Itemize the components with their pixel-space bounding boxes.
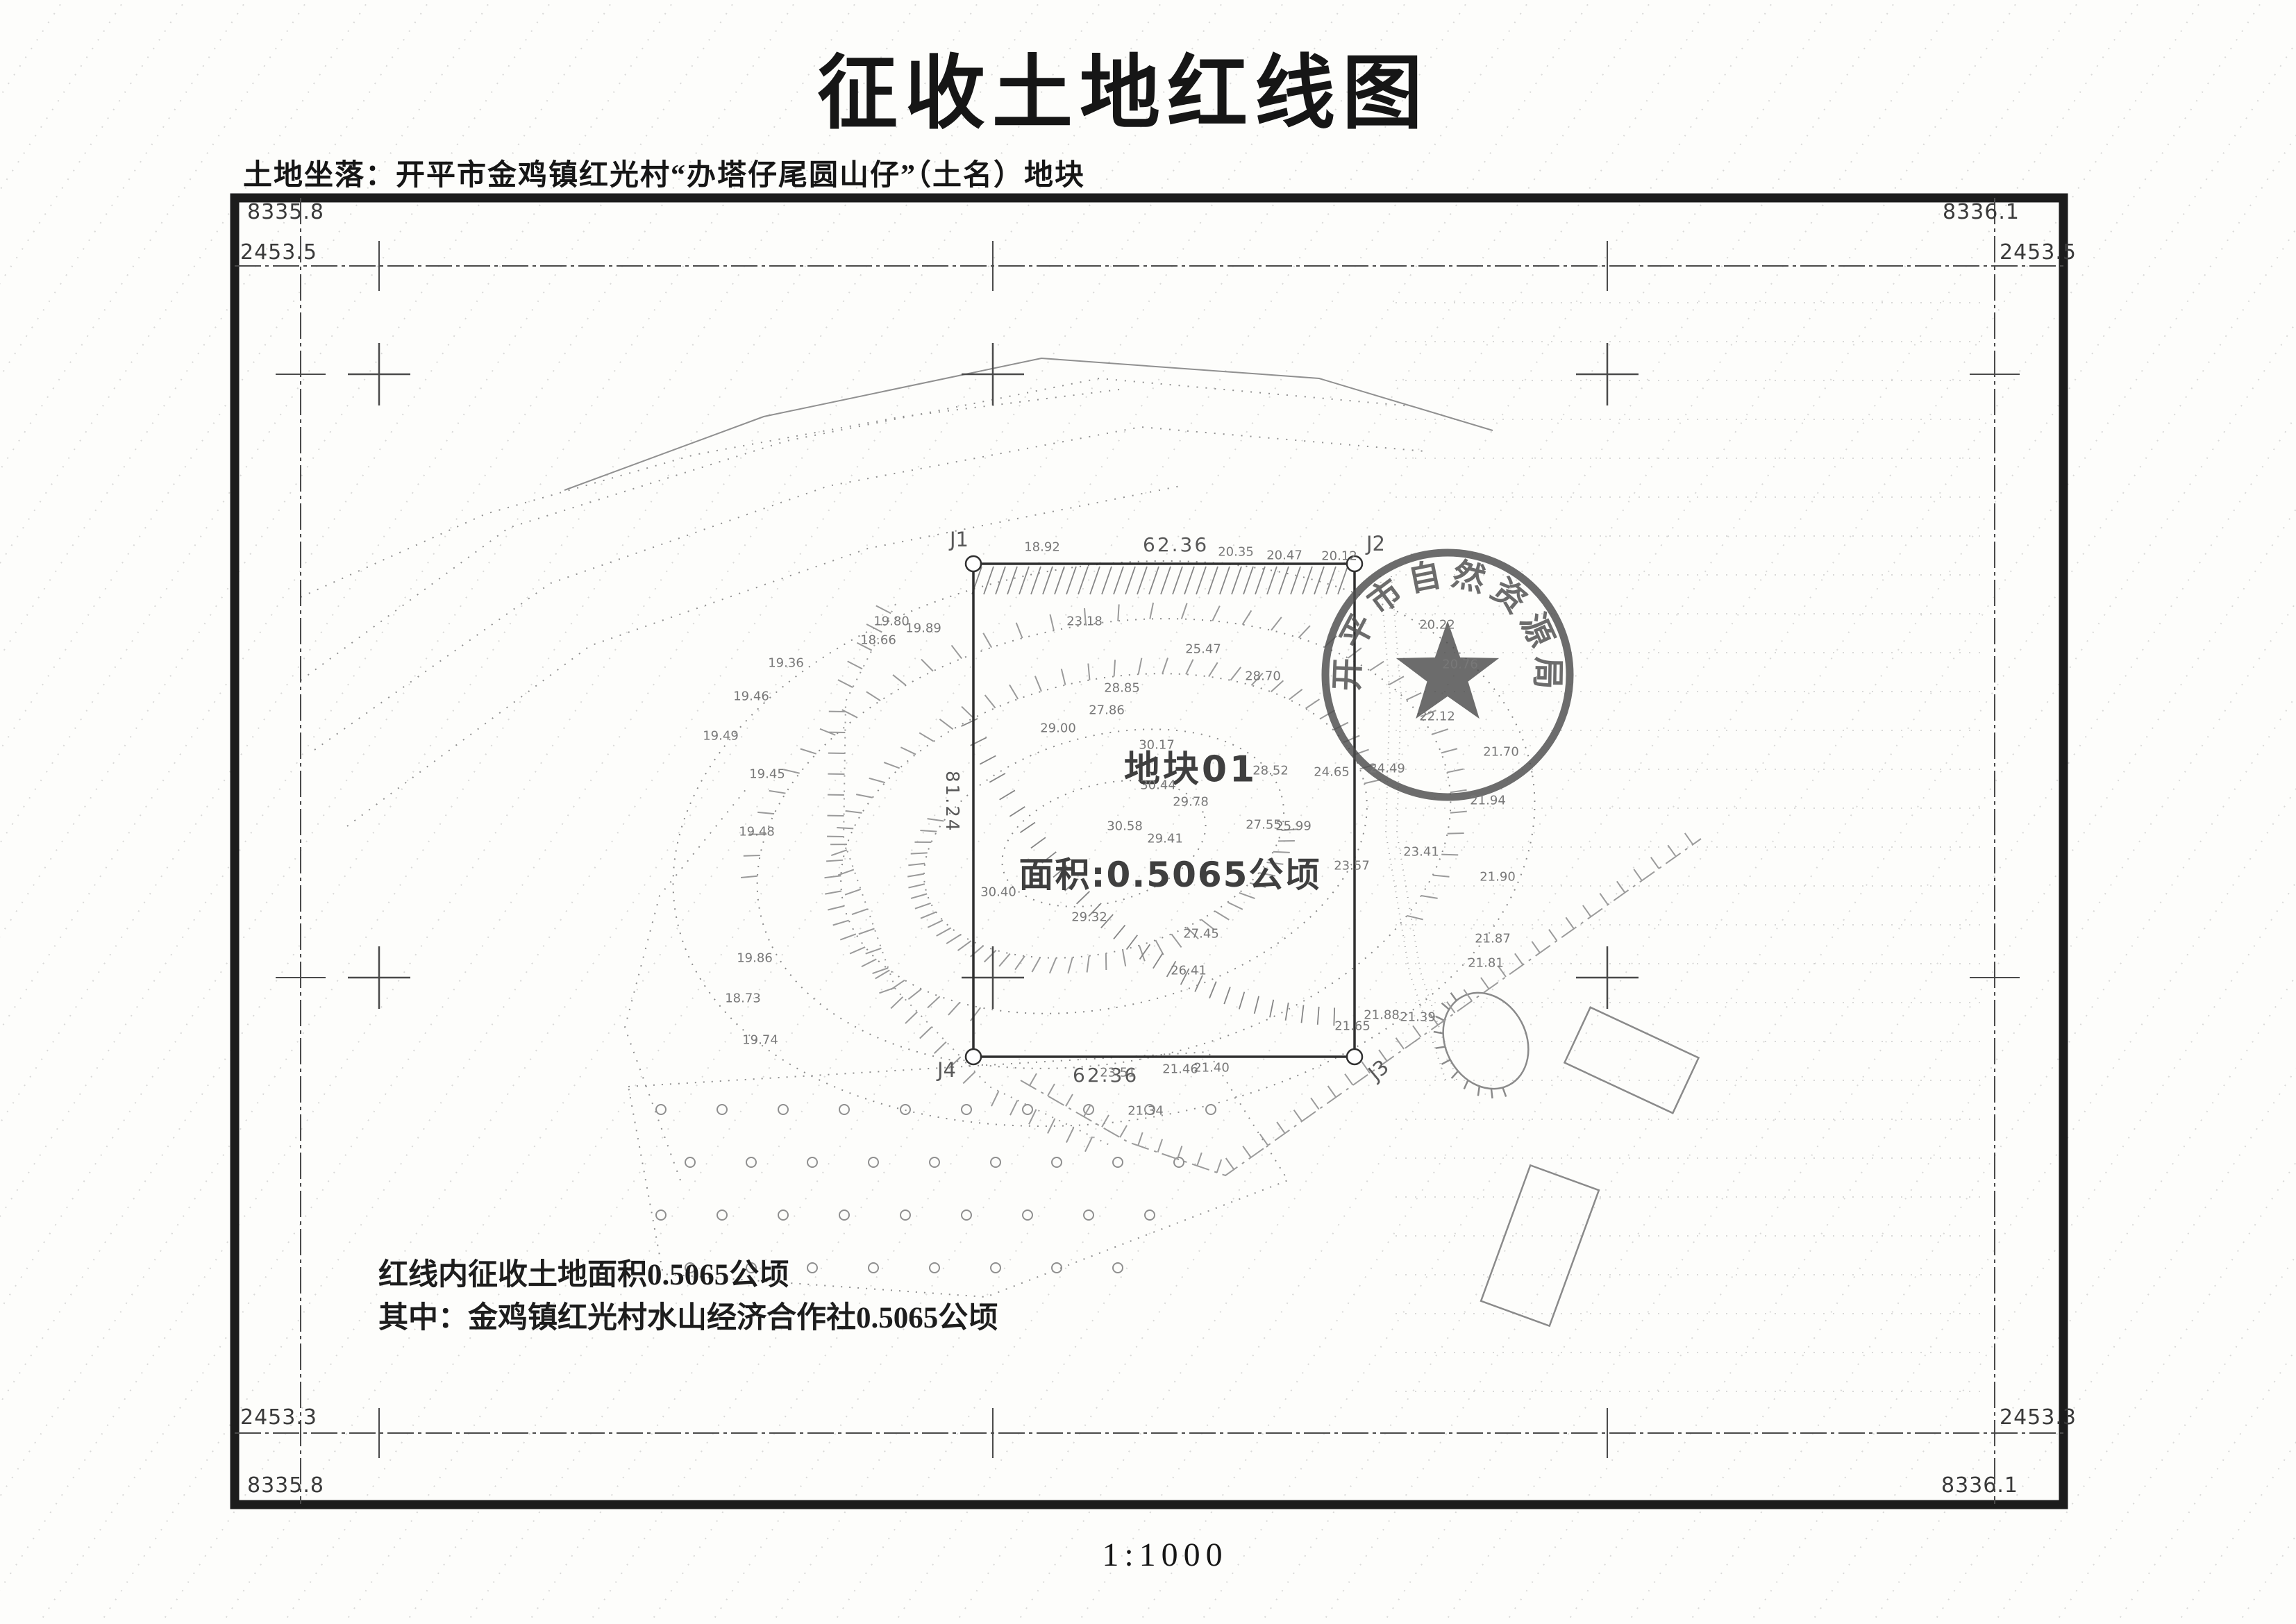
hachure-tick	[1566, 917, 1574, 928]
hachure-tick	[1010, 1100, 1017, 1116]
hachure-tick	[884, 762, 900, 768]
texture-line	[242, 0, 1387, 1624]
hachure-tick	[1230, 667, 1241, 680]
hachure-tick	[907, 874, 924, 877]
hatch-tick	[1314, 567, 1324, 594]
hachure-tick	[1282, 829, 1298, 830]
hachure-tick	[1478, 1086, 1480, 1096]
hachure-tick	[946, 935, 960, 944]
hachure-tick	[1481, 978, 1489, 989]
hachure-tick	[1389, 676, 1404, 685]
hachure-tick	[866, 692, 880, 701]
orchard-dot	[807, 1157, 817, 1167]
contour-line	[564, 358, 1493, 490]
texture-line	[0, 0, 1021, 1624]
hachure-tick	[1306, 699, 1320, 708]
hatch-tick	[1149, 567, 1159, 594]
texture-line	[1525, 0, 2296, 1624]
contour-line	[301, 389, 1125, 597]
contour-line	[625, 785, 750, 1180]
hachure-tick	[937, 928, 951, 936]
hachure-tick	[1450, 812, 1467, 813]
hatch-tick	[1078, 567, 1088, 594]
hachure-tick	[838, 869, 854, 875]
hatch-tick	[1031, 567, 1041, 594]
hatch-tick	[1153, 953, 1163, 969]
orchard-dot	[839, 1210, 849, 1220]
hachure-tick	[850, 947, 865, 954]
hatch-tick	[1195, 976, 1203, 992]
hachure-tick	[879, 987, 895, 993]
hachure-tick	[1407, 916, 1423, 920]
hachure-tick	[911, 853, 928, 853]
hatch-tick	[1114, 925, 1125, 939]
hatch-tick	[1173, 567, 1182, 594]
texture-line	[1219, 0, 2296, 1624]
hachure-tick	[826, 860, 843, 862]
hachure-tick	[1215, 911, 1230, 919]
grid-coord-bottom-left-easting: 2453.3	[240, 1405, 317, 1430]
contour-line	[347, 486, 1180, 826]
hachure-tick	[862, 959, 876, 966]
hatch-tick	[1220, 567, 1230, 594]
hachure-tick	[757, 812, 774, 814]
hachure-tick	[1436, 1047, 1446, 1048]
hachure-tick	[825, 891, 841, 894]
hatch-tick	[1301, 1005, 1303, 1023]
hatch-tick	[1338, 567, 1348, 594]
hachure-tick	[1171, 934, 1181, 947]
hachure-tick	[1212, 606, 1220, 621]
texture-line	[1647, 0, 2296, 1624]
orchard-dot	[1145, 1105, 1155, 1114]
texture-line	[1891, 0, 2296, 1624]
land-location-label: 土地坐落：开平市金鸡镇红光村“办塔仔尾圆山仔”（土名）地块	[243, 151, 1085, 194]
hatch-tick	[984, 567, 994, 594]
hachure-tick	[801, 749, 816, 754]
texture-line	[2197, 0, 2296, 1624]
hatch-tick	[1090, 567, 1100, 594]
hachure-tick	[1430, 1014, 1438, 1025]
grid-coord-bottom-right-easting: 2453.3	[2000, 1405, 2077, 1430]
texture-line	[914, 0, 2059, 1624]
hachure-tick	[1441, 748, 1457, 753]
contour-line	[315, 427, 1425, 750]
hachure-tick	[963, 1072, 975, 1084]
hachure-tick	[911, 894, 927, 898]
hachure-tick	[852, 909, 868, 914]
hachure-tick	[840, 934, 856, 939]
hachure-tick	[744, 855, 760, 856]
hachure-tick	[985, 695, 996, 708]
texture-line	[853, 0, 1998, 1624]
hatch-tick	[1224, 987, 1230, 1005]
hachure-tick	[908, 864, 925, 866]
hachure-tick	[1217, 1160, 1221, 1173]
orchard-dot	[1145, 1210, 1155, 1220]
parcel-corner-label-j2: J2	[1366, 532, 1385, 555]
hachure-tick	[1066, 1094, 1073, 1106]
texture-line	[364, 0, 1509, 1624]
hachure-tick	[749, 834, 766, 835]
hachure-tick	[1088, 664, 1089, 680]
hachure-tick	[891, 997, 903, 1009]
hatch-tick	[1101, 914, 1113, 928]
terrain-layer	[0, 0, 2296, 1624]
hatch-tick	[1125, 567, 1135, 594]
orchard-dot	[930, 1157, 939, 1167]
hachure-tick	[1209, 662, 1218, 676]
hachure-tick	[1162, 658, 1168, 673]
hachure-tick	[1436, 1016, 1445, 1021]
orchard-dot	[1023, 1105, 1032, 1114]
hachure-tick	[1617, 881, 1625, 892]
orchard-dot	[1113, 1157, 1123, 1167]
hatch-tick	[1102, 567, 1112, 594]
texture-line	[0, 0, 715, 1624]
hatch-tick	[1137, 567, 1147, 594]
note-total-area: 红线内征收土地面积0.5065公顷	[378, 1254, 998, 1297]
hachure-tick	[1062, 669, 1066, 685]
hachure-tick	[831, 850, 847, 855]
orchard-dot	[839, 1105, 849, 1114]
hachure-tick	[1048, 1084, 1055, 1096]
hachure-tick	[1634, 869, 1642, 880]
hatch-tick	[1239, 992, 1245, 1010]
hachure-tick	[991, 1091, 998, 1107]
orchard-dot	[656, 1105, 666, 1114]
hachure-tick	[920, 830, 937, 832]
texture-line	[1158, 0, 2296, 1624]
hatch-tick	[996, 567, 1005, 594]
texture-line	[1464, 0, 2296, 1624]
hachure-tick	[1050, 958, 1056, 973]
hachure-tick	[1182, 603, 1187, 619]
hachure-tick	[1114, 660, 1115, 676]
hachure-tick	[1413, 1026, 1421, 1037]
hatch-tick	[1009, 807, 1025, 817]
hachure-tick	[825, 876, 841, 878]
texture-line	[608, 0, 1754, 1624]
orchard-dot	[717, 1210, 727, 1220]
parcel-boundary	[966, 556, 1362, 1064]
hatch-tick	[961, 719, 978, 726]
hachure-tick	[1120, 1125, 1127, 1137]
texture-line	[0, 0, 1143, 1624]
hachure-tick	[1123, 950, 1125, 966]
grid-coord-top-right-northing: 8336.1	[1943, 200, 2020, 224]
texture-line	[0, 0, 898, 1624]
grid-coord-top-left-northing: 8335.8	[247, 200, 324, 224]
corner-marker-j3	[1347, 1049, 1362, 1064]
hachure-tick	[1138, 1132, 1142, 1146]
hachure-tick	[952, 645, 962, 658]
hachure-tick	[1251, 673, 1262, 686]
hachure-tick	[962, 707, 973, 719]
texture-line	[669, 0, 1815, 1624]
orchard-dot	[869, 1157, 878, 1167]
grid-coord-bottom-right-northing: 8336.1	[1941, 1473, 2018, 1498]
hachure-tick	[741, 876, 757, 878]
orchard-dot	[746, 1157, 756, 1167]
hachure-tick	[1298, 626, 1309, 637]
grid-coord-top-left-easting: 2453.5	[240, 240, 317, 265]
hachure-tick	[1448, 833, 1464, 834]
building-outline	[1481, 1165, 1599, 1325]
orchard-dot	[778, 1210, 788, 1220]
texture-line	[0, 0, 654, 1624]
texture-line	[303, 0, 1448, 1624]
hachure-tick	[971, 1007, 980, 1021]
hachure-tick	[1084, 608, 1086, 625]
hatch-tick	[1209, 982, 1216, 998]
parcel-edge-length-left: 81.24	[941, 771, 962, 832]
acquisition-notes: 红线内征收土地面积0.5065公顷 其中：金鸡镇红光村水山经济合作社0.5065…	[378, 1254, 998, 1341]
hachure-tick	[1197, 1153, 1201, 1166]
hachure-tick	[838, 680, 853, 687]
hachure-tick	[1243, 1146, 1251, 1157]
map-scale-label: 1:1000	[1102, 1536, 1227, 1574]
texture-line	[1341, 0, 2296, 1624]
parcel-name-label: 地块01	[1124, 740, 1257, 792]
texture-line	[2075, 0, 2296, 1624]
orchard-dot	[717, 1105, 727, 1114]
texture-line	[0, 0, 165, 1624]
orchard-dot	[778, 1105, 788, 1114]
corner-marker-j4	[966, 1049, 981, 1064]
hachure-tick	[1139, 658, 1142, 675]
texture-line	[2258, 0, 2296, 1624]
hachure-tick	[1364, 780, 1380, 783]
orchard-dot	[962, 1105, 971, 1114]
hachure-tick	[1447, 769, 1463, 773]
hachure-tick	[1150, 603, 1153, 619]
hachure-tick	[1651, 857, 1659, 869]
hachure-tick	[866, 948, 882, 954]
background-texture	[0, 0, 2296, 1624]
hachure-tick	[1434, 1032, 1443, 1033]
hachure-tick	[1491, 1089, 1493, 1098]
corner-marker-j1	[966, 556, 981, 571]
hachure-tick	[856, 794, 873, 798]
hatch-tick	[1255, 996, 1259, 1014]
hachure-tick	[935, 1042, 946, 1054]
hachure-tick	[984, 951, 996, 962]
hachure-tick	[1289, 689, 1302, 700]
hachure-tick	[1441, 855, 1458, 855]
parcel-edge-length-top: 62.36	[1143, 533, 1209, 556]
parcel-hatching	[961, 567, 1350, 1026]
hachure-tick	[1048, 1119, 1055, 1134]
flatland-texture	[1396, 303, 1987, 1391]
hachure-tick	[1016, 623, 1023, 638]
hatch-tick	[1020, 822, 1034, 832]
hatch-tick	[1318, 1007, 1319, 1025]
hachure-tick	[948, 1003, 960, 1015]
hachure-tick	[859, 928, 875, 934]
hatch-tick	[1127, 935, 1138, 950]
hachure-tick	[1066, 1128, 1073, 1143]
hachure-tick	[848, 661, 862, 669]
hachure-tick	[920, 1027, 932, 1039]
hachure-tick	[905, 1012, 917, 1023]
hachure-tick	[1050, 614, 1053, 630]
hachure-tick	[1502, 1087, 1506, 1096]
texture-line	[1586, 0, 2296, 1624]
texture-line	[2136, 0, 2296, 1624]
texture-line	[791, 0, 1937, 1624]
parcel-corner-label-j1: J1	[950, 528, 969, 551]
texture-line	[1280, 0, 2296, 1624]
hachure-tick	[1186, 660, 1193, 675]
hatch-tick	[1114, 567, 1123, 594]
hachure-tick	[1515, 953, 1523, 964]
parcel-corner-label-j4: J4	[937, 1058, 956, 1082]
hachure-tick	[1068, 957, 1072, 973]
texture-line	[0, 0, 226, 1624]
hachure-tick	[1243, 610, 1252, 624]
orchard-dot	[1052, 1157, 1062, 1167]
texture-line	[0, 0, 776, 1624]
contour-ring	[718, 562, 1490, 1125]
hachure-tick	[1118, 604, 1119, 621]
map-sheet: 开平市自然资源局 征收土地红线图 土地坐落：开平市金鸡镇红光村“办塔仔尾圆山仔”…	[0, 0, 2296, 1624]
hachure-tick	[1085, 1137, 1092, 1152]
pond-outline	[1427, 978, 1545, 1104]
hachure-tick	[999, 953, 1010, 966]
hachure-tick	[1030, 1073, 1037, 1085]
hachure-tick	[1406, 693, 1421, 700]
hachure-tick	[1271, 617, 1282, 630]
hachure-tick	[1421, 896, 1438, 898]
hachure-tick	[1450, 790, 1467, 793]
hachure-tick	[1583, 905, 1591, 916]
hatch-tick	[1279, 567, 1289, 594]
hatch-tick	[1302, 567, 1312, 594]
orchard-dot	[656, 1210, 666, 1220]
hachure-tick	[769, 791, 786, 794]
hachure-tick	[783, 769, 799, 773]
hachure-tick	[1271, 680, 1284, 692]
texture-line	[547, 0, 1693, 1624]
parcel-area-label: 面积:0.5065公顷	[1019, 847, 1321, 897]
hachure-tick	[921, 660, 933, 671]
hachure-tick	[1015, 956, 1025, 970]
texture-line	[0, 0, 104, 1624]
hachure-tick	[1370, 662, 1384, 671]
hachure-tick	[1155, 940, 1163, 955]
hatch-tick	[1161, 567, 1171, 594]
orchard-dot	[1113, 1263, 1123, 1273]
hachure-tick	[866, 624, 881, 632]
hachure-tick	[921, 912, 936, 919]
orchard-dot	[900, 1210, 910, 1220]
hatch-tick	[1243, 567, 1253, 594]
hatch-tick	[1055, 567, 1064, 594]
texture-line	[730, 0, 1876, 1624]
hachure-tick	[1345, 1074, 1353, 1085]
parcel-rectangle	[973, 564, 1355, 1057]
hatch-tick	[1181, 969, 1189, 985]
hachure-tick	[1260, 1134, 1268, 1145]
hachure-tick	[1035, 676, 1041, 692]
hachure-tick	[928, 996, 940, 1007]
hachure-tick	[1087, 956, 1089, 973]
hatch-tick	[1007, 567, 1017, 594]
hachure-tick	[1277, 1122, 1285, 1133]
hatch-tick	[980, 755, 996, 764]
page-title: 征收土地红线图	[817, 28, 1430, 144]
note-cooperative-area: 其中：金鸡镇红光村水山经济合作社0.5065公顷	[378, 1297, 998, 1340]
orchard-dot	[962, 1210, 971, 1220]
texture-line	[975, 0, 2120, 1624]
texture-line	[0, 0, 410, 1624]
hatch-tick	[1232, 567, 1241, 594]
hachure-tick	[1227, 902, 1243, 909]
hachure-tick	[1549, 930, 1557, 941]
hatch-tick	[1286, 1003, 1289, 1021]
hatch-tick	[1334, 1007, 1334, 1026]
buildings	[1481, 1007, 1698, 1326]
hachure-tick	[1685, 833, 1693, 844]
hachure-tick	[1311, 1098, 1319, 1109]
stamp-star-icon	[1396, 621, 1499, 719]
hachure-tick	[1451, 993, 1457, 1001]
grid-coord-bottom-left-northing: 8335.8	[247, 1473, 324, 1498]
orchard-dot	[1023, 1210, 1032, 1220]
hachure-tick	[845, 889, 861, 895]
hatch-tick	[1208, 567, 1218, 594]
hachure-tick	[919, 733, 934, 741]
hatch-tick	[1255, 567, 1265, 594]
hachure-tick	[1201, 919, 1214, 930]
official-stamp: 开平市自然资源局	[1325, 553, 1570, 797]
hachure-tick	[958, 941, 971, 951]
hachure-tick	[1433, 876, 1450, 877]
hatch-tick	[989, 773, 1005, 782]
hatch-tick	[1196, 567, 1206, 594]
texture-line	[0, 0, 837, 1624]
hachure-tick	[869, 778, 885, 782]
hachure-tick	[1009, 685, 1018, 699]
hachure-tick	[1226, 1158, 1234, 1169]
hachure-tick	[857, 643, 871, 651]
hachure-tick	[915, 903, 931, 909]
grid-coord-top-right-easting: 2453.5	[2000, 240, 2077, 265]
orchard-dot	[685, 1157, 695, 1167]
orchard-dot	[900, 1105, 910, 1114]
hachure-tick	[1441, 1060, 1450, 1064]
texture-line	[0, 0, 1082, 1624]
orchard-dot	[1084, 1210, 1093, 1220]
texture-line	[0, 0, 960, 1624]
pond	[1427, 978, 1545, 1104]
texture-line	[425, 0, 1570, 1624]
hachure-tick	[1532, 941, 1540, 953]
hatch-tick	[1270, 1000, 1273, 1017]
texture-line	[181, 0, 1326, 1624]
hachure-tick	[1668, 845, 1676, 856]
hatch-tick	[1291, 567, 1300, 594]
hachure-tick	[1498, 966, 1506, 977]
hachure-tick	[1464, 1080, 1468, 1089]
contour-line	[301, 378, 1411, 680]
corner-marker-j2	[1347, 556, 1362, 571]
hachure-tick	[828, 906, 844, 910]
hachure-tick	[846, 811, 862, 813]
hachure-tick	[1600, 894, 1608, 905]
hachure-tick	[1294, 1110, 1302, 1121]
